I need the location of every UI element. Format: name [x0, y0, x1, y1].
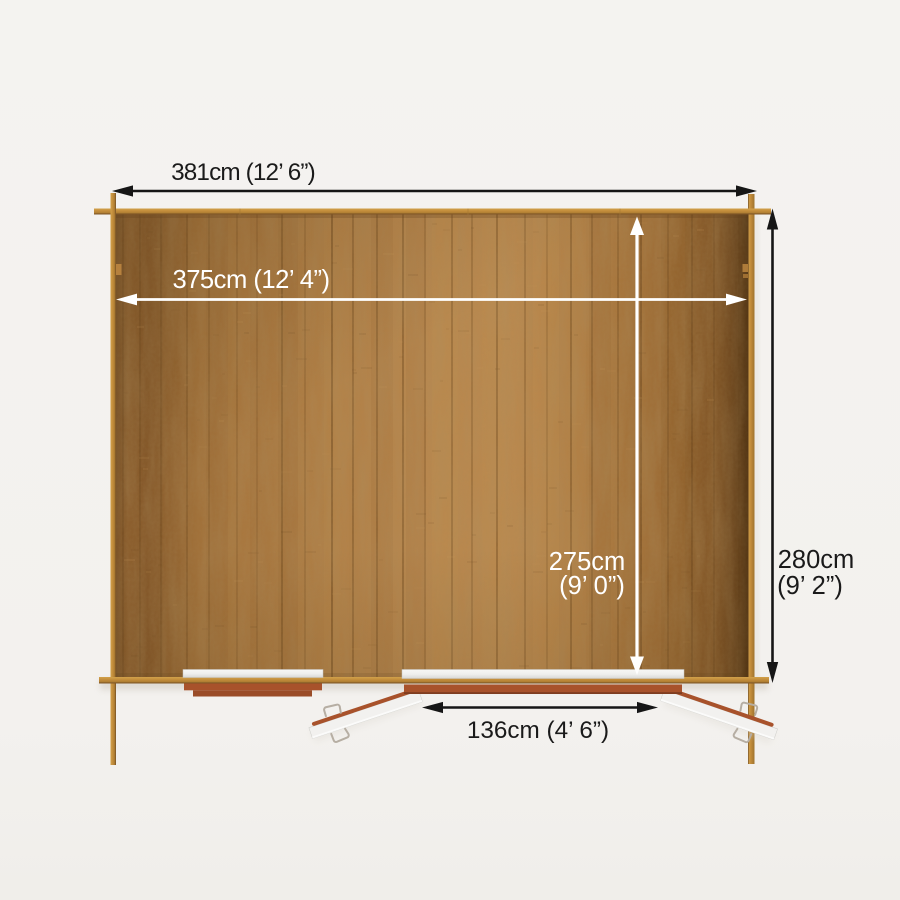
svg-text:280cm: 280cm	[778, 546, 855, 574]
svg-text:136cm (4’ 6”): 136cm (4’ 6”)	[467, 717, 609, 744]
svg-text:381cm (12’ 6”): 381cm (12’ 6”)	[171, 159, 315, 186]
svg-text:(9’ 0”): (9’ 0”)	[559, 572, 625, 600]
svg-text:375cm (12’ 4”): 375cm (12’ 4”)	[172, 266, 329, 294]
svg-text:(9’ 2”): (9’ 2”)	[777, 572, 843, 600]
